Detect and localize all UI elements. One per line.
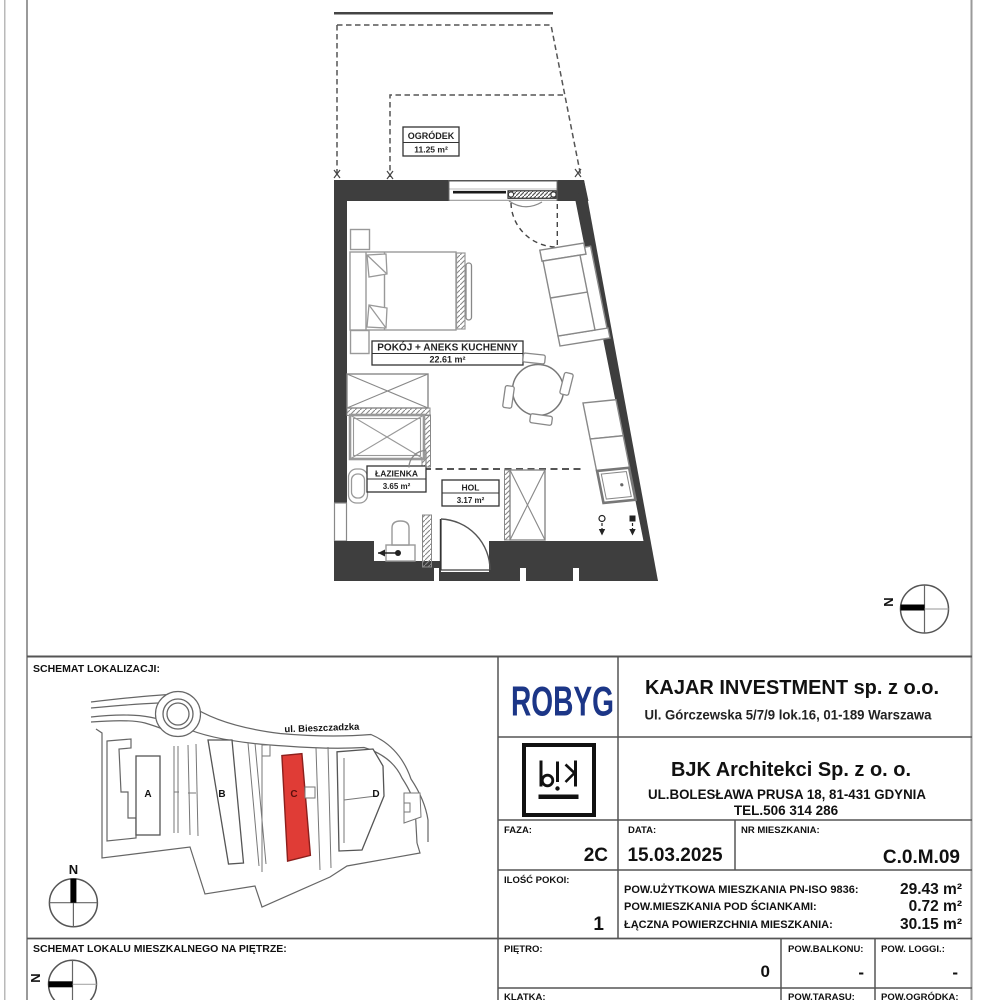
svg-text:ul. Bieszczadzka: ul. Bieszczadzka xyxy=(284,722,360,736)
svg-text:N: N xyxy=(28,973,43,982)
svg-text:3.65 m²: 3.65 m² xyxy=(383,482,411,491)
svg-text:SCHEMAT LOKALIZACJI:: SCHEMAT LOKALIZACJI: xyxy=(33,663,160,675)
svg-text:OGRÓDEK: OGRÓDEK xyxy=(408,130,455,141)
svg-text:A: A xyxy=(144,789,151,800)
svg-text:N: N xyxy=(881,597,896,606)
svg-text:POW.UŻYTKOWA MIESZKANIA PN-ISO: POW.UŻYTKOWA MIESZKANIA PN-ISO 9836: xyxy=(624,883,859,896)
svg-text:NR MIESZKANIA:: NR MIESZKANIA: xyxy=(741,825,820,836)
svg-text:Ul. Górczewska 5/7/9 lok.16, 0: Ul. Górczewska 5/7/9 lok.16, 01-189 Wars… xyxy=(645,707,932,723)
svg-text:KLATKA:: KLATKA: xyxy=(504,992,546,1000)
svg-text:ROBYG: ROBYG xyxy=(511,678,614,725)
svg-text:POW.MIESZKANIA POD ŚCIANKAMI:: POW.MIESZKANIA POD ŚCIANKAMI: xyxy=(624,900,817,913)
svg-text:1: 1 xyxy=(593,914,604,935)
svg-text:0.72 m²: 0.72 m² xyxy=(909,898,962,915)
svg-text:22.61 m²: 22.61 m² xyxy=(429,355,465,365)
svg-text:FAZA:: FAZA: xyxy=(504,825,532,836)
svg-text:POW. LOGGI.:: POW. LOGGI.: xyxy=(881,944,945,955)
svg-text:3.17 m²: 3.17 m² xyxy=(457,496,485,505)
svg-text:-: - xyxy=(858,963,864,982)
svg-text:0: 0 xyxy=(761,962,770,981)
svg-text:UL.BOLESŁAWA PRUSA 18, 81-431: UL.BOLESŁAWA PRUSA 18, 81-431 GDYNIA xyxy=(648,787,926,802)
svg-text:ŁAZIENKA: ŁAZIENKA xyxy=(375,469,418,479)
svg-text:C: C xyxy=(290,789,297,800)
svg-text:ŁĄCZNA POWIERZCHNIA MIESZKANIA: ŁĄCZNA POWIERZCHNIA MIESZKANIA: xyxy=(624,919,833,931)
svg-text:PIĘTRO:: PIĘTRO: xyxy=(504,944,543,955)
svg-text:HOL: HOL xyxy=(462,483,480,493)
svg-text:POW.BALKONU:: POW.BALKONU: xyxy=(788,944,863,955)
svg-text:D: D xyxy=(372,789,379,800)
svg-text:-: - xyxy=(952,963,958,982)
svg-text:KAJAR INVESTMENT sp. z o.o.: KAJAR INVESTMENT sp. z o.o. xyxy=(645,676,939,699)
svg-text:30.15 m²: 30.15 m² xyxy=(900,916,962,933)
svg-text:POW.TARASU:: POW.TARASU: xyxy=(788,992,855,1000)
svg-text:DATA:: DATA: xyxy=(628,825,656,836)
svg-text:SCHEMAT LOKALU MIESZKALNEGO NA: SCHEMAT LOKALU MIESZKALNEGO NA PIĘTRZE: xyxy=(33,943,287,955)
svg-text:11.25 m²: 11.25 m² xyxy=(414,145,448,155)
svg-text:B: B xyxy=(218,789,225,800)
svg-text:POW.OGRÓDKA:: POW.OGRÓDKA: xyxy=(881,991,959,1000)
svg-text:POKÓJ + ANEKS KUCHENNY: POKÓJ + ANEKS KUCHENNY xyxy=(377,341,518,354)
svg-text:TEL.506 314 286: TEL.506 314 286 xyxy=(734,803,839,818)
svg-text:15.03.2025: 15.03.2025 xyxy=(627,845,723,866)
svg-text:N: N xyxy=(69,862,78,877)
svg-text:ILOŚĆ POKOI:: ILOŚĆ POKOI: xyxy=(504,874,569,886)
svg-text:BJK Architekci Sp. z o. o.: BJK Architekci Sp. z o. o. xyxy=(671,758,911,781)
svg-text:2C: 2C xyxy=(584,845,609,866)
svg-text:29.43 m²: 29.43 m² xyxy=(900,881,962,898)
svg-text:C.0.M.09: C.0.M.09 xyxy=(883,847,960,868)
